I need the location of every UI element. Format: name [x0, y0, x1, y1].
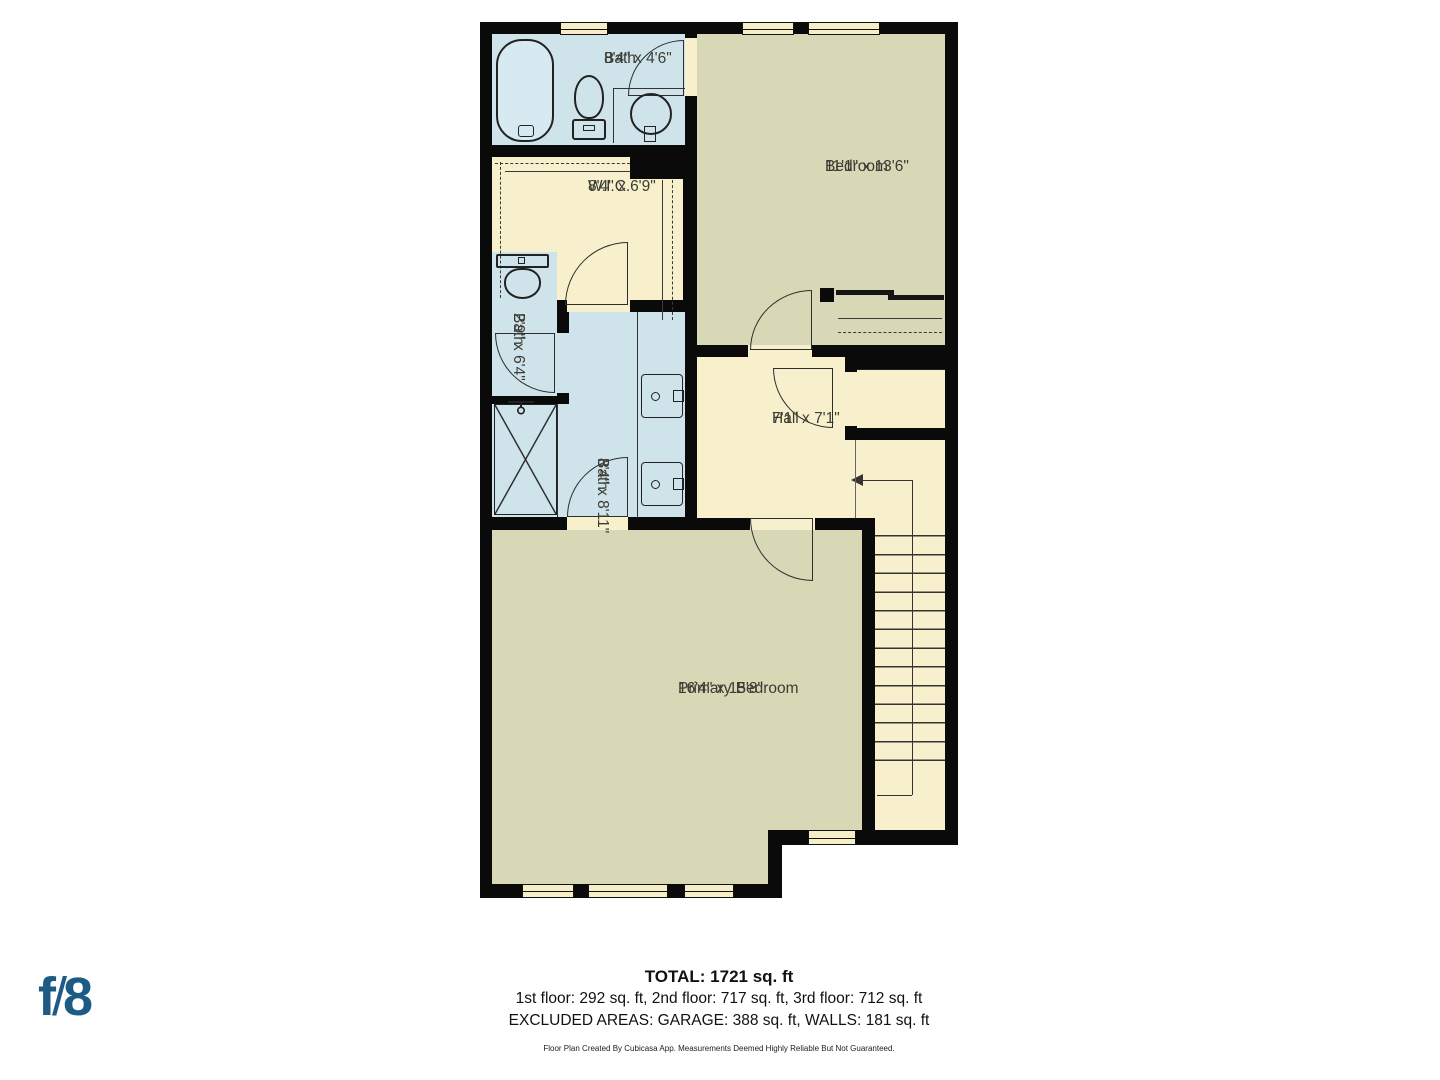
vanity-counter-main	[637, 312, 638, 517]
window-primary-3	[684, 884, 734, 898]
toilet-button-top	[583, 125, 595, 131]
window-primary-1	[522, 884, 574, 898]
room-dims: 8'4" x 6'9"	[588, 174, 656, 200]
doorway-bath-bedroom	[685, 38, 697, 96]
excluded-areas-text: EXCLUDED AREAS: GARAGE: 388 sq. ft, WALL…	[509, 1012, 930, 1030]
closet-slider-track-2	[888, 295, 944, 300]
disclaimer-text: Floor Plan Created By Cubicasa App. Meas…	[543, 1044, 894, 1053]
wic-shelf-dash-right	[672, 180, 673, 320]
wic-shelf-dash-left	[500, 162, 501, 298]
logo-8: 8	[63, 967, 92, 1027]
room-primary-bedroom-left	[492, 530, 768, 884]
window-bottom-right	[808, 830, 856, 845]
room-dims: 2'9" x 6'4"	[506, 313, 530, 381]
shower-pan	[494, 404, 557, 515]
wic-shelf-line-right	[662, 180, 663, 320]
stair-arrow-shaft	[862, 480, 912, 481]
shower-x-icon	[495, 405, 556, 514]
doorway-bath-small	[557, 333, 569, 393]
total-area-text: TOTAL: 1721 sq. ft	[645, 967, 794, 987]
floor-plan: Bath 8'4" x 4'6" Bedroom 11'1" x 13'6" W…	[480, 22, 958, 898]
window-bedroom-1	[742, 22, 794, 35]
room-dims: 11'1" x 13'6"	[825, 154, 909, 180]
closet-shelf-line	[838, 318, 942, 319]
landing-edge-line	[855, 440, 856, 518]
stair-up-arrow-icon	[851, 474, 863, 486]
floor-areas-text: 1st floor: 292 sq. ft, 2nd floor: 717 sq…	[516, 990, 923, 1008]
sink-tap-top	[644, 126, 656, 142]
room-dims: 8'4" x 4'6"	[604, 46, 672, 72]
sink-basin-main-2	[641, 462, 683, 506]
wall-closet-nub	[820, 288, 834, 302]
toilet-bowl-small	[504, 268, 541, 299]
room-hall-closet	[857, 369, 945, 428]
sink-basin-main-1	[641, 374, 683, 418]
room-dims: 8'4" x 8'11"	[590, 458, 614, 533]
wic-shelf-dash-top	[495, 163, 630, 164]
stair-center-line	[912, 480, 913, 795]
stair-treads	[875, 518, 945, 761]
closet-rod-dash	[838, 332, 942, 333]
f8-logo: f/8	[38, 966, 92, 1028]
wic-shelf-line-top	[505, 171, 630, 172]
room-dims: 7'1" x 7'1"	[772, 406, 840, 432]
shower-head-icon	[506, 399, 536, 415]
shower-glass-line	[557, 404, 558, 517]
bathtub-faucet-icon	[518, 125, 534, 137]
stair-bottom-line	[877, 795, 912, 796]
doorway-hall-closet	[845, 372, 857, 426]
toilet-bowl-top	[574, 75, 604, 119]
room-dims: 16'4" x 15'8"	[678, 676, 763, 702]
window-primary-2	[588, 884, 668, 898]
closet-slider-track-1	[836, 290, 894, 295]
window-bedroom-2	[808, 22, 880, 35]
window-bath-top	[560, 22, 608, 35]
toilet-button-small	[518, 257, 525, 264]
